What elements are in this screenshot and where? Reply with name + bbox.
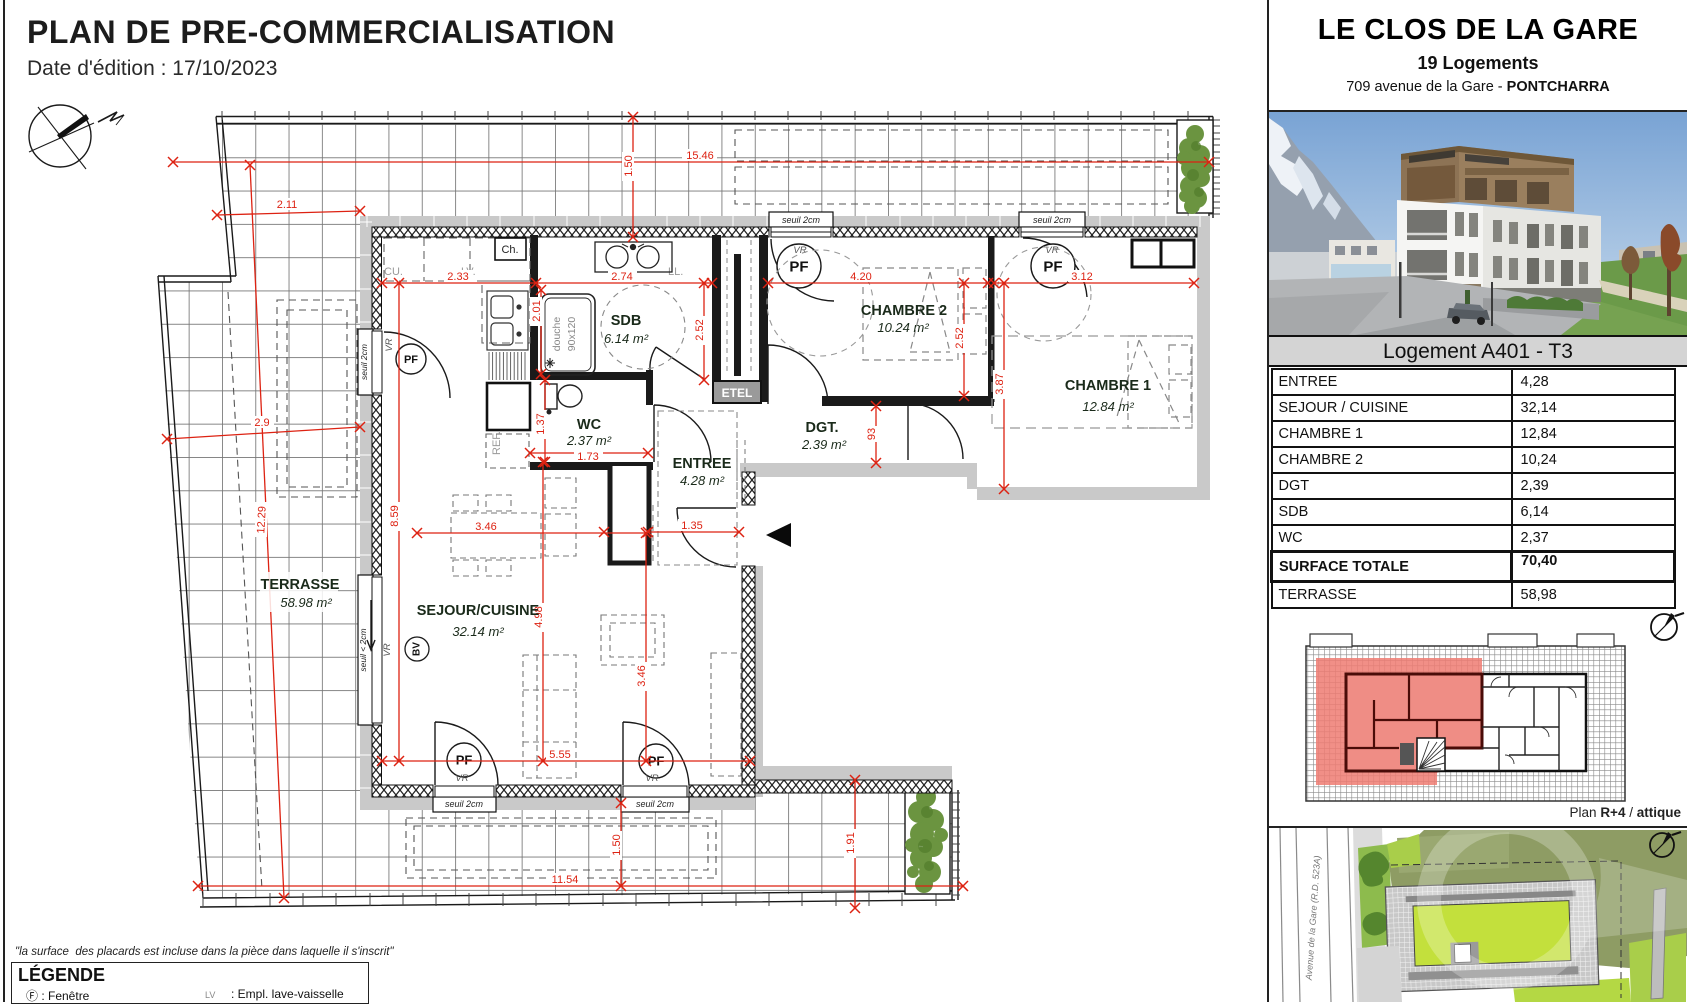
svg-text:2.74: 2.74 <box>611 271 632 283</box>
svg-text:1.73: 1.73 <box>577 451 598 463</box>
svg-text:SDB: SDB <box>611 313 642 329</box>
svg-text:4.20: 4.20 <box>850 271 871 283</box>
svg-text:CU.: CU. <box>384 266 403 278</box>
svg-text:2.52: 2.52 <box>954 327 966 348</box>
svg-text:WC: WC <box>577 417 602 433</box>
svg-text:VR: VR <box>455 773 468 784</box>
svg-text:10.24 m²: 10.24 m² <box>877 320 929 335</box>
svg-text:VR: VR <box>793 245 806 256</box>
svg-text:2.52: 2.52 <box>694 319 706 340</box>
svg-text:2.33: 2.33 <box>447 271 468 283</box>
svg-text:3.87: 3.87 <box>994 373 1006 394</box>
svg-text:Plan R+4 / attique: Plan R+4 / attique <box>1570 805 1682 820</box>
svg-text:TERRASSE: TERRASSE <box>261 577 340 593</box>
svg-text:seuil 2cm: seuil 2cm <box>1033 215 1072 225</box>
svg-text:2.11: 2.11 <box>277 199 298 211</box>
svg-text:11.54: 11.54 <box>552 874 579 886</box>
svg-text:58.98 m²: 58.98 m² <box>280 595 332 610</box>
svg-text:Avenue de la Gare (R.D. 523A): Avenue de la Gare (R.D. 523A) <box>1304 855 1323 981</box>
svg-text:2.37 m²: 2.37 m² <box>566 433 612 448</box>
svg-text:ETEL: ETEL <box>722 386 753 400</box>
svg-text:93: 93 <box>866 428 878 440</box>
svg-text:1.91: 1.91 <box>845 832 857 853</box>
svg-text:VR: VR <box>645 773 658 784</box>
svg-text:3.12: 3.12 <box>1071 271 1092 283</box>
svg-text:6.14 m²: 6.14 m² <box>604 331 649 346</box>
svg-text:CHAMBRE 2: CHAMBRE 2 <box>861 303 947 319</box>
svg-text:CHAMBRE 1: CHAMBRE 1 <box>1065 378 1151 394</box>
svg-text:1.37: 1.37 <box>535 413 547 434</box>
svg-text:Ch.: Ch. <box>501 244 518 256</box>
svg-text:15.46: 15.46 <box>686 150 714 162</box>
svg-text:VR: VR <box>382 643 393 656</box>
svg-text:2.39 m²: 2.39 m² <box>801 437 847 452</box>
svg-text:90x120: 90x120 <box>566 317 578 352</box>
svg-text:5.55: 5.55 <box>549 749 570 761</box>
svg-text:PF: PF <box>456 753 473 768</box>
svg-text:ENTREE: ENTREE <box>673 456 732 472</box>
svg-text:2.9: 2.9 <box>254 417 269 429</box>
svg-text:seuil < 2cm: seuil < 2cm <box>358 628 368 671</box>
svg-text:1.50: 1.50 <box>611 834 623 855</box>
svg-text:seuil 2cm: seuil 2cm <box>782 215 821 225</box>
svg-text:seuil 2cm: seuil 2cm <box>445 799 484 809</box>
svg-text:PF: PF <box>789 258 808 275</box>
svg-text:DGT.: DGT. <box>805 420 838 436</box>
svg-text:PF: PF <box>404 354 418 366</box>
svg-text:seuil 2cm: seuil 2cm <box>636 799 675 809</box>
svg-text:3.46: 3.46 <box>636 665 648 686</box>
svg-text:PF: PF <box>1043 258 1062 275</box>
svg-text:12.29: 12.29 <box>255 506 268 534</box>
svg-text:4.28 m²: 4.28 m² <box>680 473 725 488</box>
svg-text:3.46: 3.46 <box>475 521 496 533</box>
svg-text:seuil 2cm: seuil 2cm <box>359 344 369 380</box>
svg-text:32.14 m²: 32.14 m² <box>452 624 504 639</box>
svg-text:VR: VR <box>384 338 395 351</box>
svg-text:8.59: 8.59 <box>389 505 401 526</box>
svg-text:1.50: 1.50 <box>623 155 635 176</box>
svg-text:12.84 m²: 12.84 m² <box>1082 399 1134 414</box>
svg-text:1.35: 1.35 <box>681 520 702 532</box>
svg-text:BV: BV <box>412 642 423 656</box>
svg-text:REF.: REF. <box>491 431 503 455</box>
svg-text:douche: douche <box>551 317 563 352</box>
svg-text:2.01: 2.01 <box>531 300 543 321</box>
svg-text:SEJOUR/CUISINE: SEJOUR/CUISINE <box>417 603 540 619</box>
